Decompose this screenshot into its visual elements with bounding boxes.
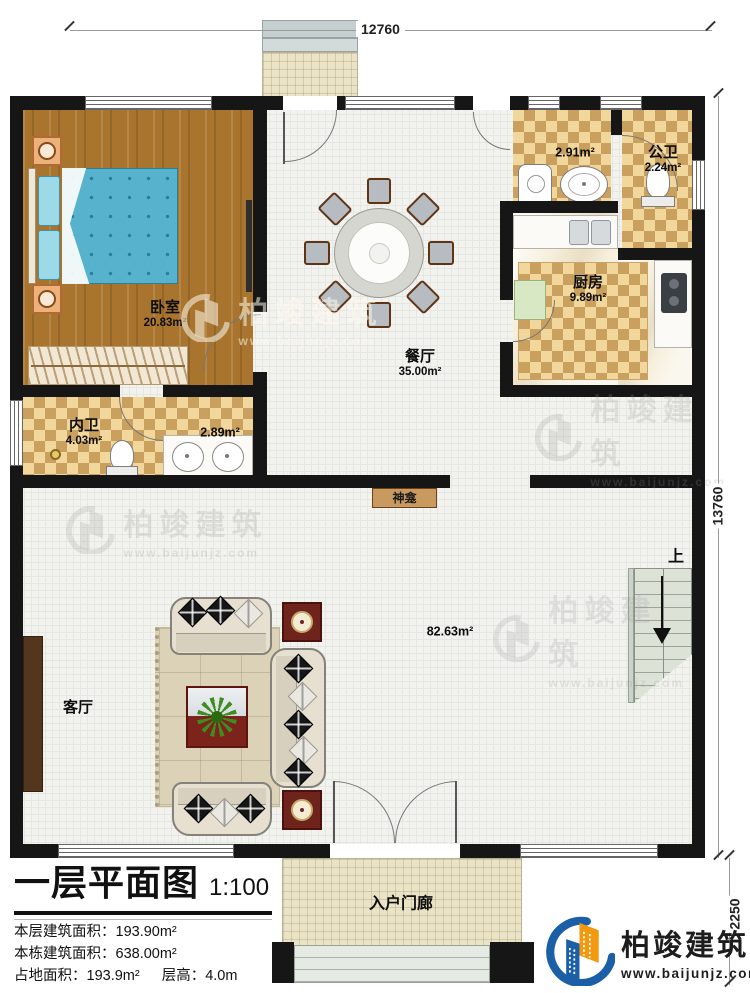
tv-cabinet	[23, 636, 43, 792]
brand-logo: 柏竣建筑 www.baijunjz.com	[541, 916, 750, 986]
end-table	[282, 790, 322, 830]
dining-chair	[367, 302, 391, 328]
wardrobe	[28, 346, 188, 385]
wall-segment	[10, 475, 450, 488]
floor-drain-icon	[50, 449, 61, 460]
title-row: 一层平面图1:100	[14, 854, 272, 906]
floor-plan-canvas: 神龛 上 卧室 20.83m² 餐厅	[0, 0, 750, 993]
door-leaf	[333, 781, 335, 843]
area-value: 638.00m²	[116, 946, 177, 962]
top-balcony-band	[262, 38, 358, 52]
window	[692, 160, 705, 210]
door-leaf	[283, 112, 285, 164]
door-opening	[283, 96, 337, 110]
wall-segment	[10, 385, 120, 397]
window	[528, 96, 560, 110]
kitchen-counter	[654, 260, 692, 348]
window	[85, 96, 212, 110]
lamp-icon	[38, 290, 56, 308]
washing-machine-icon	[518, 164, 552, 203]
sink-drain	[225, 454, 229, 458]
room-name: 卧室	[144, 299, 187, 317]
shrine-label: 神龛	[392, 491, 416, 505]
stairs-direction-label: 上	[668, 548, 684, 565]
title-block: 一层平面图1:100 本层建筑面积：193.90m² 本栋建筑面积：638.00…	[14, 854, 272, 986]
wall-segment	[500, 201, 618, 213]
room-label-hall: 82.63m²	[427, 625, 474, 640]
bed-pillow	[38, 230, 60, 280]
nightstand	[32, 284, 62, 314]
area-value: 193.9m²	[87, 968, 140, 984]
area-label: 本层建筑面积：	[14, 924, 116, 940]
wall-segment	[500, 201, 513, 300]
stair-arrow-stem	[661, 576, 663, 628]
lazy-susan	[369, 243, 390, 264]
sink-icon	[212, 442, 244, 472]
dining-chair	[428, 241, 454, 265]
coffee-table	[186, 686, 248, 748]
entry-door-opening	[330, 844, 460, 858]
lamp-icon	[291, 799, 313, 821]
dining-table	[334, 208, 424, 298]
room-name: 厨房	[570, 274, 606, 292]
wall-segment	[490, 942, 534, 983]
wall-segment	[272, 942, 294, 983]
plan-scale: 1:100	[209, 874, 269, 901]
area-row: 占地面积：193.9m²层高：4.0m	[14, 966, 272, 986]
room-name: 客厅	[63, 699, 93, 717]
area-label: 占地面积：	[14, 968, 87, 984]
plant-center	[211, 711, 223, 723]
brand-company: 柏竣建筑	[621, 922, 750, 964]
stair-arrow-icon	[653, 628, 671, 644]
sink-icon	[172, 442, 204, 472]
kitchen-counter	[513, 215, 618, 249]
room-area: 2.91m²	[555, 146, 595, 161]
brand-website: www.baijunjz.com	[621, 966, 750, 981]
room-label-bedroom: 卧室 20.83m²	[144, 299, 187, 331]
room-label-entry-porch: 入户门廊	[369, 894, 433, 913]
door-opening	[473, 96, 510, 110]
dimension-right-height: 13760	[709, 484, 725, 529]
top-porch-floor	[262, 52, 358, 100]
brand-text: 柏竣建筑 www.baijunjz.com	[621, 922, 750, 981]
wall-segment	[163, 385, 267, 397]
area-label: 本栋建筑面积：	[14, 946, 116, 962]
lamp-center	[300, 620, 304, 624]
room-label-living: 客厅	[63, 699, 93, 717]
room-label-public-bath: 公卫 2.24m²	[645, 144, 681, 176]
stair-rail	[628, 568, 634, 703]
height-value: 4.0m	[205, 968, 237, 984]
shrine-box: 神龛	[372, 488, 437, 508]
wall-segment	[253, 96, 267, 312]
room-label-vanity: 2.89m²	[200, 426, 240, 441]
toilet-tank	[641, 196, 675, 207]
plant-icon	[197, 697, 237, 737]
room-label-kitchen: 厨房 9.89m²	[570, 274, 606, 306]
room-area: 2.24m²	[645, 162, 681, 176]
window	[520, 844, 658, 858]
room-area: 35.00m²	[399, 366, 442, 380]
area-row: 本层建筑面积：193.90m²	[14, 922, 272, 942]
stairs-direction: 上	[668, 547, 684, 566]
room-name: 公卫	[645, 144, 681, 162]
title-underline	[14, 911, 272, 915]
washer-drum	[527, 175, 545, 193]
room-name: 入户门廊	[369, 895, 433, 912]
tv-panel	[246, 200, 252, 292]
top-balcony-band	[262, 20, 358, 38]
sink-drain	[185, 454, 189, 458]
room-area: 20.83m²	[144, 317, 187, 331]
lamp-center	[300, 808, 304, 812]
sofa-seat	[176, 633, 266, 652]
brand-logo-icon	[541, 916, 615, 986]
wall-segment	[500, 385, 705, 397]
room-area: 9.89m²	[570, 292, 606, 306]
window	[345, 96, 455, 110]
dimension-top-width: 12760	[356, 21, 405, 37]
window	[600, 96, 642, 110]
room-name: 餐厅	[399, 348, 442, 366]
sink-icon	[560, 166, 608, 203]
room-label-dining: 餐厅 35.00m²	[399, 348, 442, 380]
sink-drain	[582, 182, 586, 186]
room-area: 4.03m²	[66, 435, 102, 449]
room-label-laundry: 2.91m²	[555, 146, 595, 161]
lamp-icon	[38, 142, 56, 160]
height-label: 层高：	[162, 968, 206, 984]
room-area: 2.89m²	[200, 426, 240, 441]
burner	[669, 279, 679, 289]
lamp-icon	[291, 611, 313, 633]
window	[10, 400, 23, 466]
dimension-line	[718, 96, 719, 858]
title-underline-thin	[14, 919, 272, 920]
sink-icon	[591, 220, 611, 245]
door-leaf	[455, 781, 457, 843]
plan-title: 一层平面图	[14, 862, 199, 903]
room-area: 82.63m²	[427, 625, 474, 640]
dining-chair	[304, 241, 330, 265]
dining-chair	[367, 178, 391, 204]
bed-headboard	[28, 168, 36, 284]
entry-steps	[294, 945, 490, 983]
wall-segment	[530, 475, 705, 488]
wardrobe-rail	[31, 365, 185, 367]
end-table	[282, 602, 322, 642]
wall-segment	[618, 248, 705, 260]
area-value: 193.90m²	[116, 924, 177, 940]
nightstand	[32, 136, 62, 166]
burner	[669, 296, 679, 306]
room-name: 内卫	[66, 417, 102, 435]
stove-icon	[661, 273, 687, 313]
room-label-private-bath: 内卫 4.03m²	[66, 417, 102, 449]
area-row: 本栋建筑面积：638.00m²	[14, 944, 272, 964]
bed-pillow	[38, 176, 60, 226]
sink-icon	[569, 220, 589, 245]
vanity-counter	[163, 435, 253, 478]
